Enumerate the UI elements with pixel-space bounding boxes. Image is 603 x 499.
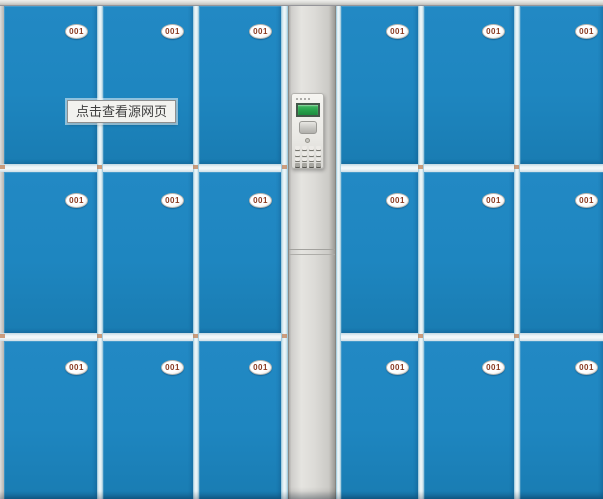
shelf-divider — [341, 333, 603, 341]
locker-number-badge: 001 — [386, 24, 409, 39]
locker-door-r1-c6: 001 — [520, 6, 603, 164]
hinge-mark — [97, 165, 102, 169]
locker-number-badge: 001 — [482, 193, 505, 208]
locker-door-r3-c5: 001 — [424, 341, 514, 499]
locker-number-badge: 001 — [575, 193, 598, 208]
keypad-key — [316, 146, 321, 150]
locker-number-badge: 001 — [161, 193, 184, 208]
control-panel — [291, 93, 324, 169]
column-divider — [281, 6, 288, 499]
column-seam — [289, 249, 335, 255]
locker-door-r3-c1: 001 — [4, 341, 97, 499]
locker-door-r2-c1: 001 — [4, 172, 97, 333]
hinge-mark — [514, 334, 519, 338]
locker-number-badge: 001 — [65, 360, 88, 375]
speaker-grille-icon — [299, 121, 317, 134]
keypad-key — [302, 163, 307, 167]
shelf-divider — [0, 164, 281, 172]
hinge-mark — [97, 334, 102, 338]
locker-door-r1-c5: 001 — [424, 6, 514, 164]
column-divider — [193, 6, 199, 499]
image-preview[interactable]: 001 001 001 001 001 001 001 001 001 001 … — [0, 0, 603, 499]
hinge-mark — [282, 334, 287, 338]
locker-door-r3-c3: 001 — [199, 341, 281, 499]
column-divider — [514, 6, 520, 499]
locker-number-badge: 001 — [575, 360, 598, 375]
keypad-key — [309, 163, 314, 167]
hinge-mark — [0, 165, 5, 169]
locker-door-r2-c2: 001 — [103, 172, 193, 333]
keypad-key — [295, 163, 300, 167]
hinge-mark — [193, 334, 198, 338]
locker-door-r2-c6: 001 — [520, 172, 603, 333]
keypad-key — [309, 158, 314, 162]
keypad-key — [309, 152, 314, 156]
locker-number-badge: 001 — [482, 24, 505, 39]
keypad-key — [302, 146, 307, 150]
locker-door-r3-c4: 001 — [341, 341, 418, 499]
keypad-key — [295, 158, 300, 162]
hinge-mark — [418, 165, 423, 169]
locker-door-r3-c6: 001 — [520, 341, 603, 499]
shelf-divider — [341, 164, 603, 172]
locker-number-badge: 001 — [249, 193, 272, 208]
locker-number-badge: 001 — [386, 193, 409, 208]
keypad-key — [316, 163, 321, 167]
panel-brand-label — [296, 98, 312, 100]
locker-number-badge: 001 — [65, 193, 88, 208]
locker-door-r1-c1: 001 — [4, 6, 97, 164]
control-column — [288, 6, 336, 499]
locker-door-r1-c2: 001 — [103, 6, 193, 164]
locker-door-r1-c4: 001 — [341, 6, 418, 164]
locker-number-badge: 001 — [249, 24, 272, 39]
locker-door-r2-c5: 001 — [424, 172, 514, 333]
locker-number-badge: 001 — [161, 360, 184, 375]
locker-door-r2-c4: 001 — [341, 172, 418, 333]
hinge-mark — [193, 165, 198, 169]
locker-number-badge: 001 — [386, 360, 409, 375]
column-divider — [97, 6, 103, 499]
lcd-display-icon — [296, 103, 320, 117]
keypad-key — [295, 152, 300, 156]
column-divider — [418, 6, 424, 499]
numeric-keypad-icon — [295, 146, 321, 167]
hinge-mark — [0, 334, 5, 338]
keypad-key — [302, 158, 307, 162]
floor-shadow — [0, 491, 603, 499]
locker-number-badge: 001 — [249, 360, 272, 375]
locker-number-badge: 001 — [482, 360, 505, 375]
view-source-tooltip[interactable]: 点击查看源网页 — [67, 100, 176, 123]
hinge-mark — [282, 165, 287, 169]
locker-number-badge: 001 — [65, 24, 88, 39]
keypad-key — [295, 146, 300, 150]
hinge-mark — [514, 165, 519, 169]
column-divider — [336, 6, 341, 499]
locker-number-badge: 001 — [161, 24, 184, 39]
shelf-divider — [0, 333, 281, 341]
locker-door-r3-c2: 001 — [103, 341, 193, 499]
locker-number-badge: 001 — [575, 24, 598, 39]
keypad-key — [309, 146, 314, 150]
locker-door-r1-c3: 001 — [199, 6, 281, 164]
indicator-button-icon — [305, 138, 310, 143]
keypad-key — [316, 152, 321, 156]
keypad-key — [302, 152, 307, 156]
hinge-mark — [418, 334, 423, 338]
locker-door-r2-c3: 001 — [199, 172, 281, 333]
keypad-key — [316, 158, 321, 162]
